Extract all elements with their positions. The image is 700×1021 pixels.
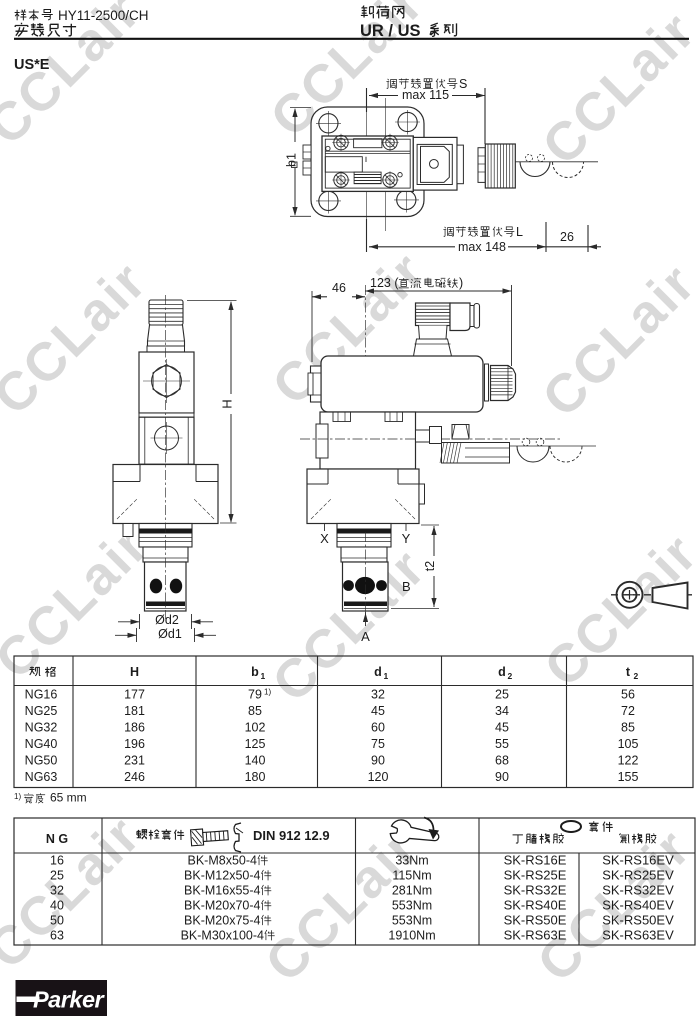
svg-text:SK-RS50E: SK-RS50E xyxy=(504,913,567,928)
svg-text:NG32: NG32 xyxy=(25,721,58,735)
svg-text:16: 16 xyxy=(50,854,64,868)
svg-text:H: H xyxy=(130,665,139,679)
svg-text:72: 72 xyxy=(621,704,635,718)
svg-text:UR / US: UR / US xyxy=(360,22,421,40)
svg-text:25: 25 xyxy=(50,869,64,883)
svg-text:140: 140 xyxy=(245,754,266,768)
svg-text:32: 32 xyxy=(50,884,64,898)
svg-text:85: 85 xyxy=(248,704,262,718)
svg-text:281Nm: 281Nm xyxy=(392,884,432,898)
svg-text:NG50: NG50 xyxy=(25,754,58,768)
svg-text:46: 46 xyxy=(332,281,346,295)
svg-text:1): 1) xyxy=(14,792,21,801)
svg-text:SK-RS63E: SK-RS63E xyxy=(504,928,567,943)
svg-text:DIN 912 12.9: DIN 912 12.9 xyxy=(253,828,330,843)
svg-text:85: 85 xyxy=(621,721,635,735)
svg-text:180: 180 xyxy=(245,770,266,784)
svg-text:BK-M12x50-4: BK-M12x50-4 xyxy=(184,869,260,883)
svg-text:Ød1: Ød1 xyxy=(158,627,182,641)
svg-text:2: 2 xyxy=(634,671,639,681)
svg-text:177: 177 xyxy=(124,688,145,702)
svg-text:90: 90 xyxy=(371,754,385,768)
svg-text:H: H xyxy=(220,399,235,408)
svg-text:NG40: NG40 xyxy=(25,737,58,751)
svg-text:SK-RS16EV: SK-RS16EV xyxy=(602,853,674,868)
svg-text:BK-M20x70-4: BK-M20x70-4 xyxy=(184,899,260,913)
svg-text:122: 122 xyxy=(618,754,639,768)
svg-text:d: d xyxy=(498,665,506,679)
svg-text:105: 105 xyxy=(618,737,639,751)
svg-text:90: 90 xyxy=(495,770,509,784)
svg-text:34: 34 xyxy=(495,704,509,718)
svg-text:b: b xyxy=(251,665,259,679)
svg-text:t2: t2 xyxy=(423,561,437,571)
svg-text:SK-RS16E: SK-RS16E xyxy=(504,853,567,868)
svg-text:120: 120 xyxy=(368,770,389,784)
svg-text:45: 45 xyxy=(495,721,509,735)
svg-text:102: 102 xyxy=(245,721,266,735)
svg-text:45: 45 xyxy=(371,704,385,718)
svg-text:123 (: 123 ( xyxy=(370,276,399,290)
svg-text:65 mm: 65 mm xyxy=(50,791,87,805)
svg-text:Parker: Parker xyxy=(33,987,106,1013)
svg-text:SK-RS25EV: SK-RS25EV xyxy=(602,868,674,883)
svg-text:1910Nm: 1910Nm xyxy=(388,929,435,943)
svg-text:196: 196 xyxy=(124,737,145,751)
svg-text:155: 155 xyxy=(618,770,639,784)
svg-text:115Nm: 115Nm xyxy=(392,869,431,883)
svg-text:A: A xyxy=(361,629,370,644)
svg-text:181: 181 xyxy=(124,704,145,718)
svg-text:56: 56 xyxy=(621,688,635,702)
svg-text:N G: N G xyxy=(46,832,68,846)
svg-text:US*E: US*E xyxy=(14,57,50,73)
svg-text:d: d xyxy=(374,665,382,679)
svg-text:246: 246 xyxy=(124,770,145,784)
svg-text:X: X xyxy=(320,531,329,546)
svg-text:HY11-2500/CH: HY11-2500/CH xyxy=(58,8,149,23)
svg-text:BK-M16x55-4: BK-M16x55-4 xyxy=(184,884,260,898)
svg-text:BK-M30x100-4: BK-M30x100-4 xyxy=(181,929,264,943)
svg-text:79: 79 xyxy=(248,688,262,702)
svg-text:125: 125 xyxy=(245,737,266,751)
svg-text:SK-RS25E: SK-RS25E xyxy=(504,868,567,883)
svg-text:60: 60 xyxy=(371,721,385,735)
svg-text:SK-RS40E: SK-RS40E xyxy=(504,898,567,913)
svg-text:max 115: max 115 xyxy=(402,88,449,102)
svg-text:BK-M20x75-4: BK-M20x75-4 xyxy=(184,914,260,928)
svg-text:25: 25 xyxy=(495,688,509,702)
svg-text:1: 1 xyxy=(261,671,266,681)
svg-text:553Nm: 553Nm xyxy=(392,914,432,928)
svg-text:1): 1) xyxy=(264,688,271,697)
svg-text:553Nm: 553Nm xyxy=(392,899,432,913)
svg-text:68: 68 xyxy=(495,754,509,768)
svg-text:63: 63 xyxy=(50,929,64,943)
svg-text:SK-RS32E: SK-RS32E xyxy=(504,883,567,898)
svg-text:SK-RS63EV: SK-RS63EV xyxy=(602,928,674,943)
svg-text:40: 40 xyxy=(50,899,64,913)
svg-text:NG63: NG63 xyxy=(25,770,58,784)
svg-text:SK-RS50EV: SK-RS50EV xyxy=(602,913,674,928)
svg-text:SK-RS40EV: SK-RS40EV xyxy=(602,898,674,913)
svg-text:26: 26 xyxy=(560,230,574,244)
svg-text:50: 50 xyxy=(50,914,64,928)
svg-text:33Nm: 33Nm xyxy=(395,854,428,868)
svg-text:75: 75 xyxy=(371,737,385,751)
svg-text:32: 32 xyxy=(371,688,385,702)
svg-text:231: 231 xyxy=(124,754,145,768)
svg-text:S: S xyxy=(459,77,467,91)
svg-text:NG16: NG16 xyxy=(25,688,58,702)
svg-text:max 148: max 148 xyxy=(458,240,506,254)
svg-text:B: B xyxy=(402,579,411,594)
svg-text:55: 55 xyxy=(495,737,509,751)
svg-text:186: 186 xyxy=(124,721,145,735)
svg-text:1: 1 xyxy=(384,671,389,681)
svg-text:Y: Y xyxy=(402,531,411,546)
svg-text:BK-M8x50-4: BK-M8x50-4 xyxy=(188,854,258,868)
svg-text:SK-RS32EV: SK-RS32EV xyxy=(602,883,674,898)
svg-text:): ) xyxy=(459,276,463,290)
svg-text:Ød2: Ød2 xyxy=(155,613,179,627)
svg-text:2: 2 xyxy=(508,671,513,681)
svg-text:L: L xyxy=(516,225,523,239)
svg-text:NG25: NG25 xyxy=(25,704,58,718)
